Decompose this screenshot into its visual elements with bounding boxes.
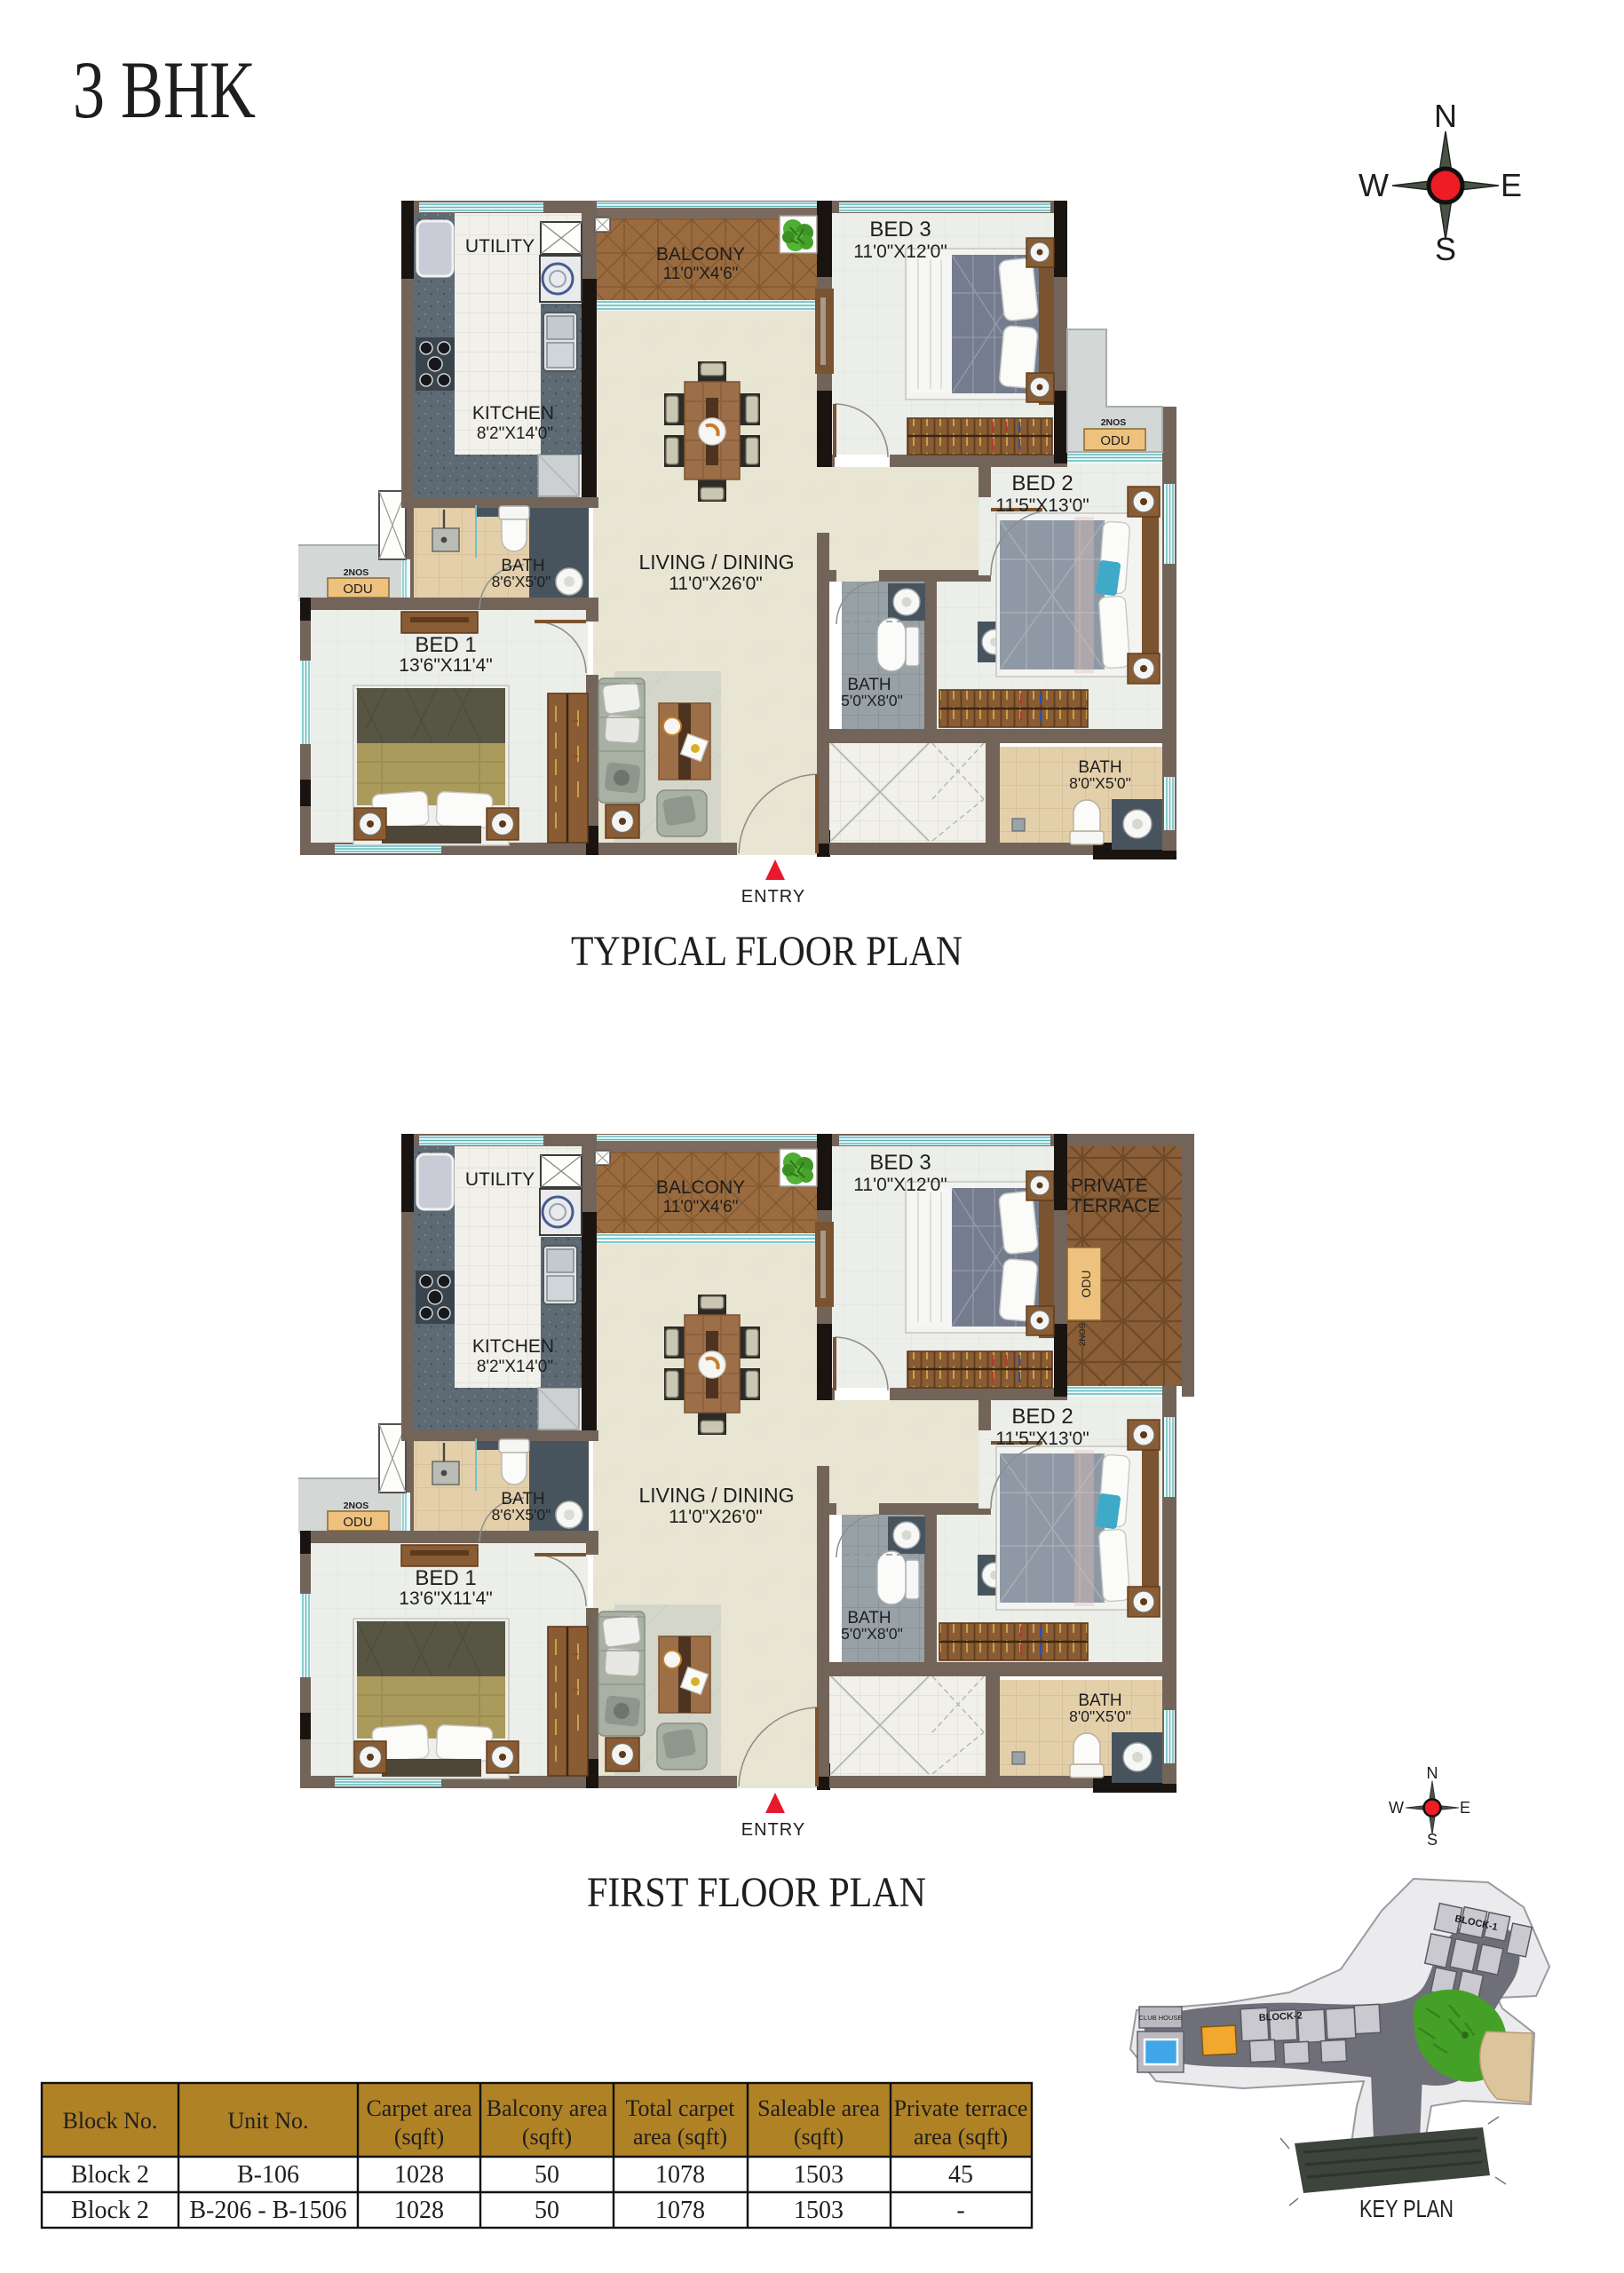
svg-text:area (sqft): area (sqft) [633,2124,727,2150]
svg-text:1078: 1078 [655,2161,705,2189]
svg-text:1503: 1503 [794,2161,844,2189]
svg-text:1078: 1078 [655,2197,705,2224]
svg-text:ODU: ODU [1079,1270,1093,1297]
svg-text:Balcony area: Balcony area [487,2095,608,2121]
svg-text:TERRACE: TERRACE [1071,1196,1160,1216]
svg-text:2NOS: 2NOS [1078,1323,1088,1346]
svg-text:B-106: B-106 [237,2161,299,2189]
svg-text:ODU: ODU [1100,433,1129,448]
svg-text:3 BHK: 3 BHK [73,44,256,135]
svg-text:KEY PLAN: KEY PLAN [1359,2195,1454,2222]
svg-text:1028: 1028 [394,2161,444,2189]
svg-text:50: 50 [535,2161,559,2189]
svg-text:TYPICAL FLOOR PLAN: TYPICAL FLOOR PLAN [571,928,963,975]
svg-text:area (sqft): area (sqft) [914,2124,1008,2150]
svg-text:1503: 1503 [794,2197,844,2224]
svg-text:Block 2: Block 2 [71,2161,149,2189]
svg-text:Private terrace: Private terrace [894,2095,1028,2121]
svg-text:PRIVATE: PRIVATE [1071,1176,1148,1196]
svg-text:Unit No.: Unit No. [228,2108,309,2134]
svg-text:Saleable area: Saleable area [757,2095,880,2121]
svg-text:Block 2: Block 2 [71,2197,149,2224]
svg-text:(sqft): (sqft) [794,2124,844,2150]
svg-text:(sqft): (sqft) [522,2124,572,2150]
svg-text:1028: 1028 [394,2197,444,2224]
svg-text:CLUB HOUSE: CLUB HOUSE [1139,2014,1183,2022]
svg-text:50: 50 [535,2197,559,2224]
svg-text:-: - [956,2197,964,2224]
svg-text:45: 45 [948,2161,973,2189]
svg-text:Total carpet: Total carpet [625,2095,735,2121]
svg-text:FIRST FLOOR PLAN: FIRST FLOOR PLAN [587,1869,926,1916]
svg-text:B-206 - B-1506: B-206 - B-1506 [189,2197,346,2224]
svg-text:(sqft): (sqft) [394,2124,444,2150]
svg-text:2NOS: 2NOS [1101,417,1127,428]
svg-text:BLOCK-2: BLOCK-2 [1259,2010,1303,2024]
svg-text:Block No.: Block No. [63,2108,158,2134]
svg-text:Carpet area: Carpet area [366,2095,472,2121]
